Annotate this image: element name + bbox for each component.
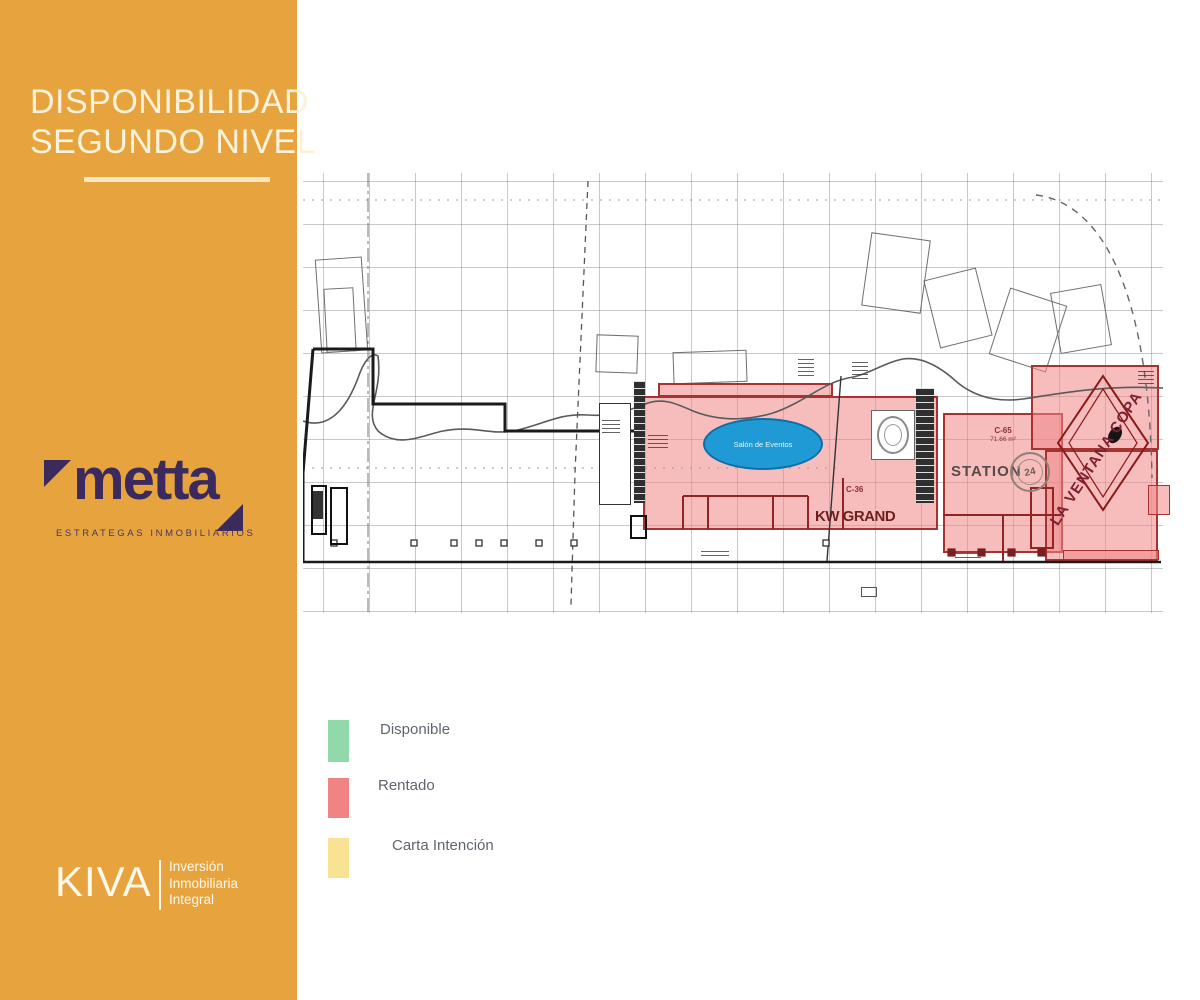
stairs-strip <box>634 381 645 503</box>
unit-bottom-strip <box>1063 550 1159 560</box>
sketch-shape <box>861 232 931 314</box>
kiva-wordmark: KIVA <box>55 858 152 906</box>
station-badge-icon: 24 <box>1010 452 1050 492</box>
unit-area: 71.66 m² <box>943 436 1063 443</box>
emblem-box <box>871 410 915 460</box>
sketch-shape <box>1050 284 1112 354</box>
kiva-tagline-line: Inmobiliaria <box>169 876 238 891</box>
legend-label-disponible: Disponible <box>380 721 450 738</box>
stair-core-fill <box>313 491 323 519</box>
legend-swatch-disponible <box>328 720 349 762</box>
tiny-text-annotation <box>852 362 868 380</box>
title-line-2: SEGUNDO NIVEL <box>30 122 290 162</box>
metta-triangle-icon <box>216 504 243 531</box>
detail-callout-box <box>861 587 877 597</box>
legend-label-carta-intencion: Carta Intención <box>392 837 494 854</box>
stairs-strip <box>916 388 934 503</box>
page-title: DISPONIBILIDAD SEGUNDO NIVEL <box>30 82 290 162</box>
corridor-room <box>599 403 631 505</box>
kiva-tagline: Inversión Inmobiliaria Integral <box>169 859 238 909</box>
legend-swatch-rentado <box>328 778 349 818</box>
metta-wordmark: metta <box>73 446 218 513</box>
metta-tagline: ESTRATEGAS INMOBILIARIOS <box>56 528 255 539</box>
service-box <box>630 515 647 539</box>
tiny-text-annotation <box>602 420 620 434</box>
tiny-text-annotation <box>648 435 668 451</box>
sketch-shape <box>595 334 638 373</box>
tenant-name: KW GRAND <box>815 508 895 525</box>
crest-inner-icon <box>884 424 902 446</box>
tiny-text-annotation <box>798 359 814 377</box>
legend-label-rentado: Rentado <box>378 777 435 794</box>
metta-logo: metta ESTRATEGAS INMOBILIARIOS <box>40 450 260 550</box>
title-underline <box>84 177 270 182</box>
tiny-text-annotation <box>955 553 981 558</box>
station-badge-number: 24 <box>1015 457 1046 488</box>
sketch-shape <box>323 287 356 352</box>
unit-id: C-65 <box>943 426 1063 435</box>
legend-swatch-carta-intencion <box>328 838 349 878</box>
kiva-divider <box>159 860 161 910</box>
event-hall-ellipse: Salón de Eventos <box>703 418 823 470</box>
sketch-shape <box>672 350 747 385</box>
left-panel: DISPONIBILIDAD SEGUNDO NIVEL metta ESTRA… <box>0 0 297 1000</box>
sketch-shape <box>923 268 992 349</box>
slide: DISPONIBILIDAD SEGUNDO NIVEL metta ESTRA… <box>0 0 1200 1000</box>
floor-plan: Salón de Eventos C-36 KW GRAND C-65 71.6… <box>303 173 1163 613</box>
title-line-1: DISPONIBILIDAD <box>30 82 290 122</box>
unit-event-hall-extension <box>658 383 833 397</box>
event-hall-label: Salón de Eventos <box>734 440 793 449</box>
metta-triangle-icon <box>44 460 71 487</box>
elevator-core <box>330 487 348 545</box>
crest-icon <box>877 416 909 454</box>
unit-small-box <box>1148 485 1170 515</box>
unit-id: C-36 <box>846 485 863 494</box>
tiny-text-annotation <box>701 551 729 556</box>
kiva-tagline-line: Integral <box>169 892 214 907</box>
kiva-tagline-line: Inversión <box>169 859 224 874</box>
tiny-text-annotation <box>1138 371 1154 387</box>
